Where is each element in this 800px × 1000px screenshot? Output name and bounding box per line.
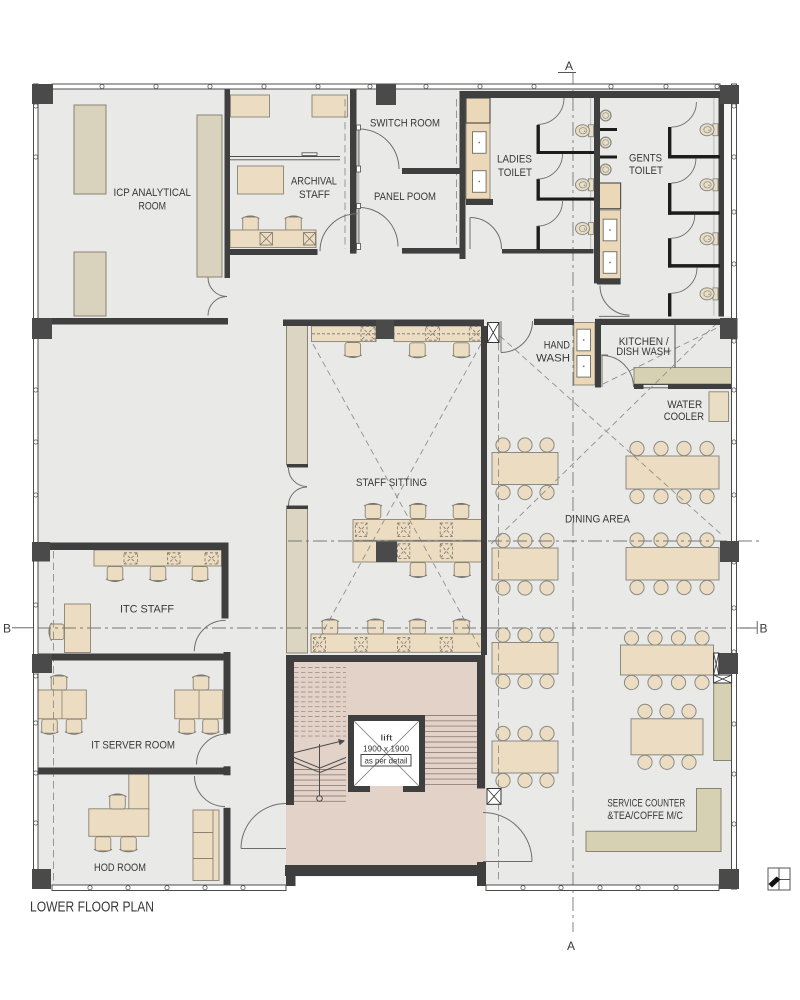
svg-text:DISH WASH: DISH WASH [616,346,670,358]
svg-text:STAFF SITTING: STAFF SITTING [356,477,427,489]
svg-text:B: B [760,622,768,636]
svg-text:LADIES: LADIES [497,154,532,166]
svg-text:&TEA/COFFE M/C: &TEA/COFFE M/C [607,810,683,822]
svg-text:IT SERVER ROOM: IT SERVER ROOM [91,740,175,752]
svg-text:PANEL POOM: PANEL POOM [374,191,436,203]
svg-text:ARCHIVAL: ARCHIVAL [291,176,337,188]
svg-text:HOD ROOM: HOD ROOM [94,862,146,874]
svg-text:as per detail: as per detail [365,755,408,765]
svg-text:ITC STAFF: ITC STAFF [120,603,174,615]
svg-text:DINING AREA: DINING AREA [565,514,631,526]
svg-text:WASH: WASH [536,353,570,365]
svg-text:SWITCH ROOM: SWITCH ROOM [370,118,440,130]
svg-text:TOILET: TOILET [498,167,532,179]
svg-text:HAND: HAND [544,340,570,352]
svg-text:LOWER FLOOR PLAN: LOWER FLOOR PLAN [30,900,154,916]
svg-text:ICP ANALYTICAL: ICP ANALYTICAL [114,187,192,199]
svg-text:1900 x 1900: 1900 x 1900 [363,744,409,754]
svg-text:GENTS: GENTS [629,153,662,165]
svg-text:WATER: WATER [667,399,702,411]
svg-text:COOLER: COOLER [664,411,704,423]
svg-text:B: B [3,622,11,636]
svg-text:A: A [565,59,573,73]
svg-text:lift: lift [381,733,394,743]
svg-text:ROOM: ROOM [139,201,167,213]
svg-text:STAFF: STAFF [299,189,330,201]
svg-text:A: A [567,939,575,953]
svg-text:SERVICE COUNTER: SERVICE COUNTER [607,797,685,809]
svg-text:TOILET: TOILET [629,165,663,177]
